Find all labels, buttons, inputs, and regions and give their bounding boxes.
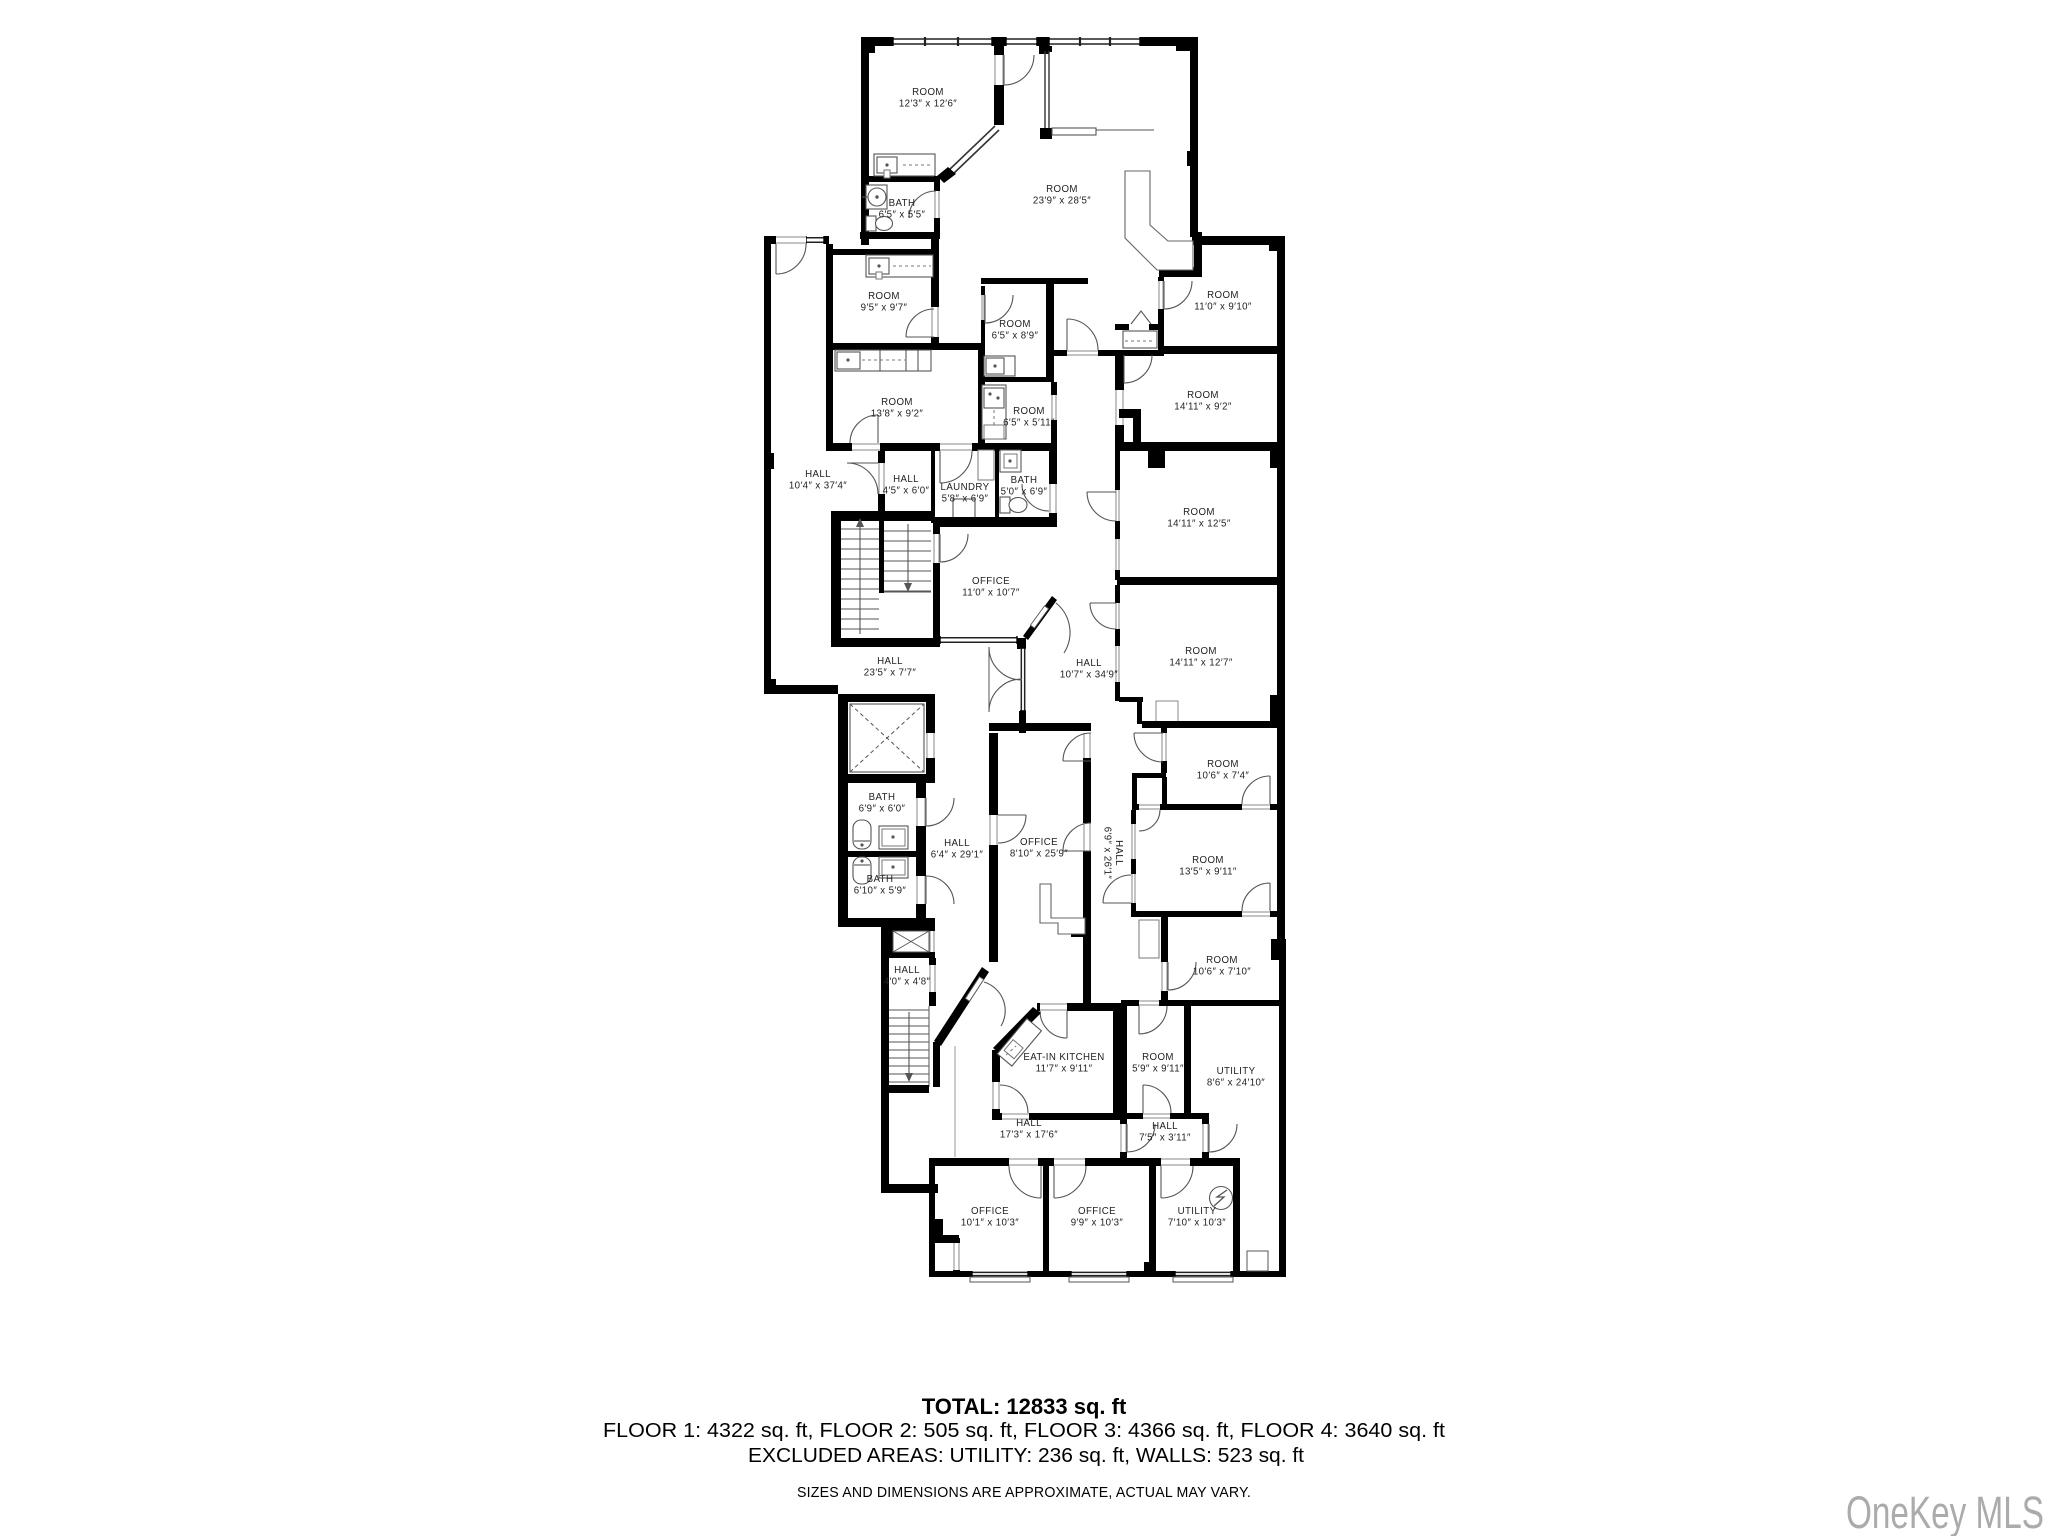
svg-text:HALL: HALL: [1076, 658, 1102, 669]
svg-text:5′8″ x 6′9″: 5′8″ x 6′9″: [942, 494, 989, 505]
svg-text:HALL: HALL: [894, 965, 920, 976]
svg-text:14′11″ x 9′2″: 14′11″ x 9′2″: [1174, 402, 1232, 413]
svg-text:5′0″ x 6′9″: 5′0″ x 6′9″: [1001, 487, 1048, 498]
svg-text:7′10″ x 10′3″: 7′10″ x 10′3″: [1168, 1218, 1226, 1229]
svg-text:10′1″ x 10′3″: 10′1″ x 10′3″: [961, 1218, 1019, 1229]
svg-text:ROOM: ROOM: [1187, 390, 1219, 401]
svg-text:ROOM: ROOM: [1142, 1052, 1174, 1063]
svg-text:10′6″ x 7′4″: 10′6″ x 7′4″: [1197, 771, 1250, 782]
svg-text:ROOM: ROOM: [1185, 646, 1217, 657]
svg-text:HALL: HALL: [944, 838, 970, 849]
svg-text:14′11″ x 12′5″: 14′11″ x 12′5″: [1167, 519, 1230, 530]
svg-text:9′9″ x 10′3″: 9′9″ x 10′3″: [1071, 1218, 1124, 1229]
svg-text:12′3″ x 12′6″: 12′3″ x 12′6″: [899, 99, 957, 110]
svg-text:EAT-IN KITCHEN: EAT-IN KITCHEN: [1023, 1052, 1104, 1063]
svg-text:6′9″ x 26′1″: 6′9″ x 26′1″: [1102, 827, 1113, 880]
svg-text:BATH: BATH: [869, 792, 896, 803]
svg-text:HALL: HALL: [877, 656, 903, 667]
svg-text:OFFICE: OFFICE: [1078, 1206, 1116, 1217]
svg-text:OneKey MLS: OneKey MLS: [1846, 1487, 2044, 1536]
svg-text:6′5″ x 5′11″: 6′5″ x 5′11″: [1003, 418, 1055, 429]
svg-text:BATH: BATH: [889, 198, 916, 209]
svg-text:BATH: BATH: [867, 874, 894, 885]
svg-text:6′5″ x 5′5″: 6′5″ x 5′5″: [879, 210, 926, 221]
svg-text:OFFICE: OFFICE: [971, 1206, 1009, 1217]
svg-text:23′5″ x 7′7″: 23′5″ x 7′7″: [864, 668, 917, 679]
svg-text:9′5″ x 9′7″: 9′5″ x 9′7″: [861, 303, 908, 314]
svg-text:5′9″ x 9′11″: 5′9″ x 9′11″: [1132, 1064, 1184, 1075]
svg-text:23′9″ x 28′5″: 23′9″ x 28′5″: [1033, 196, 1091, 207]
svg-text:8′10″ x 25′9″: 8′10″ x 25′9″: [1010, 849, 1068, 860]
svg-text:6′5″ x 8′9″: 6′5″ x 8′9″: [992, 331, 1039, 342]
svg-text:ROOM: ROOM: [912, 87, 944, 98]
svg-text:OFFICE: OFFICE: [1020, 837, 1058, 848]
svg-text:ROOM: ROOM: [868, 291, 900, 302]
svg-text:ROOM: ROOM: [999, 319, 1031, 330]
svg-text:OFFICE: OFFICE: [972, 576, 1010, 587]
svg-text:13′8″ x 9′2″: 13′8″ x 9′2″: [871, 409, 924, 420]
svg-text:11′0″ x 10′7″: 11′0″ x 10′7″: [962, 588, 1020, 599]
svg-text:14′11″ x 12′7″: 14′11″ x 12′7″: [1169, 658, 1232, 669]
svg-text:ROOM: ROOM: [1192, 855, 1224, 866]
svg-text:10′7″ x 34′9″: 10′7″ x 34′9″: [1060, 670, 1118, 681]
svg-text:UTILITY: UTILITY: [1178, 1206, 1217, 1217]
svg-text:17′3″ x 17′6″: 17′3″ x 17′6″: [1000, 1130, 1058, 1141]
svg-text:ROOM: ROOM: [1183, 507, 1215, 518]
svg-text:HALL: HALL: [1016, 1118, 1042, 1129]
svg-text:ROOM: ROOM: [1046, 184, 1078, 195]
svg-text:4′0″ x 4′8″: 4′0″ x 4′8″: [884, 977, 931, 988]
svg-text:4′5″ x 6′0″: 4′5″ x 6′0″: [883, 486, 930, 497]
svg-text:BATH: BATH: [1011, 475, 1038, 486]
svg-text:6′4″ x 29′1″: 6′4″ x 29′1″: [931, 850, 984, 861]
svg-text:UTILITY: UTILITY: [1217, 1066, 1256, 1077]
svg-text:FLOOR 1: 4322 sq. ft, FLOOR 2:: FLOOR 1: 4322 sq. ft, FLOOR 2: 505 sq. f…: [603, 1419, 1445, 1442]
svg-text:EXCLUDED AREAS: UTILITY: 236 s: EXCLUDED AREAS: UTILITY: 236 sq. ft, WAL…: [748, 1444, 1304, 1467]
svg-text:HALL: HALL: [805, 469, 831, 480]
svg-text:ROOM: ROOM: [881, 397, 913, 408]
svg-text:11′7″ x 9′11″: 11′7″ x 9′11″: [1036, 1064, 1093, 1075]
svg-text:13′5″ x 9′11″: 13′5″ x 9′11″: [1179, 867, 1237, 878]
svg-text:LAUNDRY: LAUNDRY: [941, 482, 990, 493]
svg-text:ROOM: ROOM: [1207, 759, 1239, 770]
svg-text:6′9″ x 6′0″: 6′9″ x 6′0″: [859, 804, 906, 815]
svg-text:ROOM: ROOM: [1013, 406, 1045, 417]
svg-text:HALL: HALL: [1152, 1121, 1178, 1132]
svg-text:8′6″ x 24′10″: 8′6″ x 24′10″: [1207, 1078, 1265, 1089]
svg-text:10′4″ x 37′4″: 10′4″ x 37′4″: [789, 481, 847, 492]
svg-text:7′5″ x 3′11″: 7′5″ x 3′11″: [1139, 1133, 1191, 1144]
svg-text:HALL: HALL: [1113, 840, 1124, 866]
svg-text:SIZES AND DIMENSIONS ARE APPRO: SIZES AND DIMENSIONS ARE APPROXIMATE, AC…: [797, 1484, 1251, 1501]
svg-text:10′6″ x 7′10″: 10′6″ x 7′10″: [1193, 967, 1251, 978]
svg-text:ROOM: ROOM: [1207, 290, 1239, 301]
svg-text:ROOM: ROOM: [1206, 955, 1238, 966]
svg-text:TOTAL: 12833 sq. ft: TOTAL: 12833 sq. ft: [922, 1394, 1127, 1419]
svg-text:HALL: HALL: [893, 474, 919, 485]
svg-text:11′0″ x 9′10″: 11′0″ x 9′10″: [1194, 302, 1252, 313]
svg-text:6′10″ x 5′9″: 6′10″ x 5′9″: [854, 886, 907, 897]
